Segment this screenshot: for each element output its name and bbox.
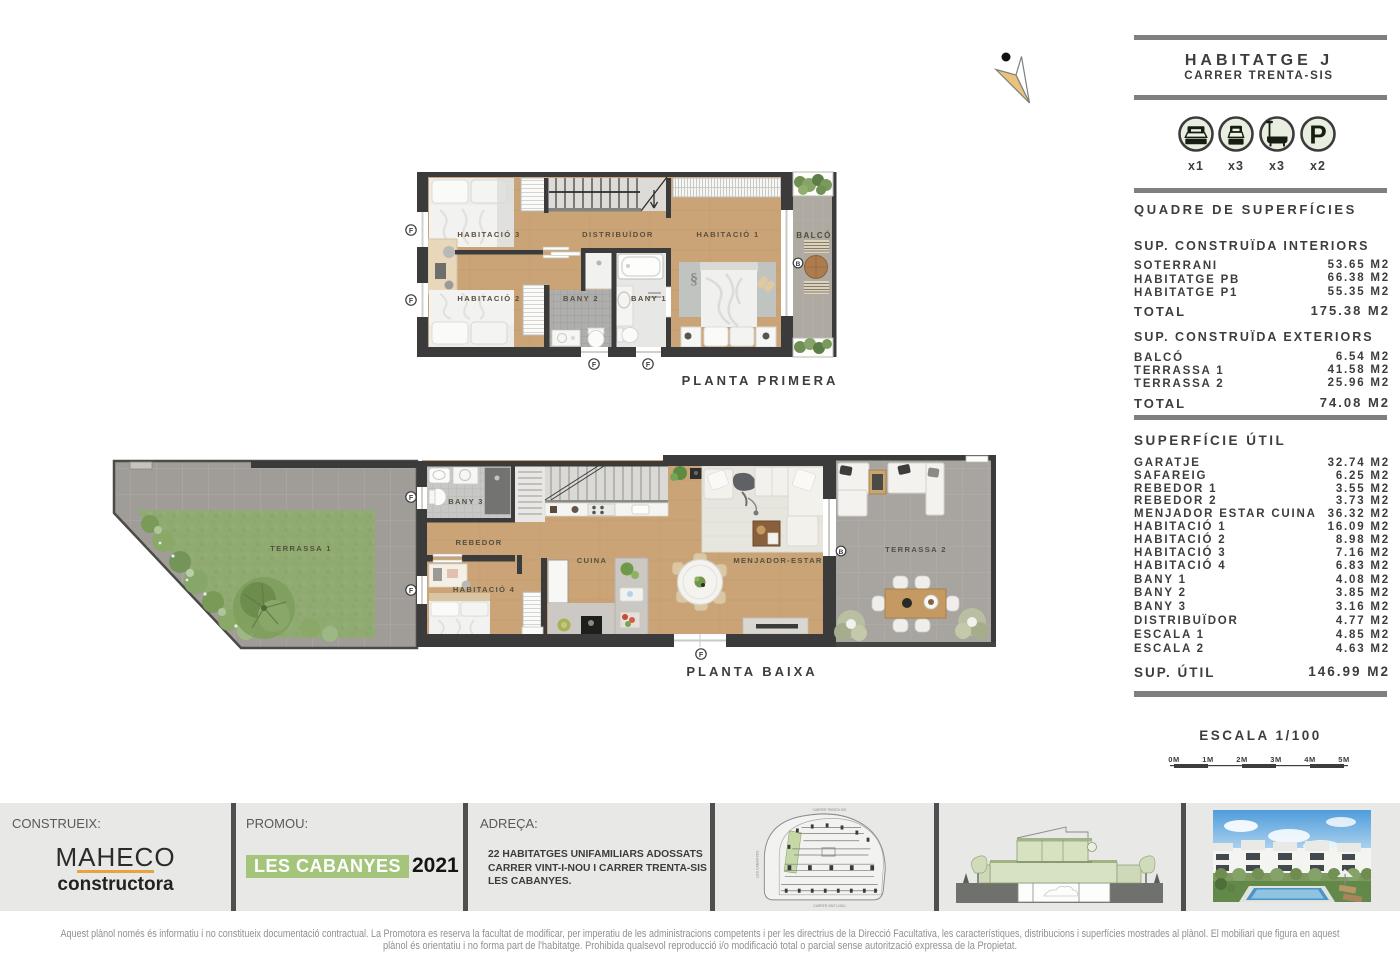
svg-text:F: F [699,652,704,659]
svg-text:TERRASSA 2: TERRASSA 2 [885,545,947,554]
svg-text:x3: x3 [1269,159,1285,173]
svg-text:x3: x3 [1228,159,1244,173]
svg-text:5M: 5M [1338,755,1349,764]
svg-text:F: F [409,228,414,235]
svg-text:CARRER TRENTA-SIS: CARRER TRENTA-SIS [813,808,847,812]
svg-text:LES CABANYES: LES CABANYES [756,850,760,878]
svg-text:F: F [409,495,414,502]
svg-text:0M: 0M [1168,755,1179,764]
svg-text:F: F [409,298,414,305]
svg-text:2M: 2M [1236,755,1247,764]
svg-text:REBEDOR: REBEDOR [455,538,502,547]
svg-text:BANY 3: BANY 3 [448,497,484,506]
svg-text:DISTRIBUÏDOR: DISTRIBUÏDOR [582,230,654,239]
svg-text:F: F [646,362,651,369]
svg-text:B: B [839,549,844,556]
svg-text:4M: 4M [1304,755,1315,764]
svg-text:TERRASSA 1: TERRASSA 1 [270,544,332,553]
svg-text:x2: x2 [1310,159,1326,173]
svg-text:§: § [690,271,698,288]
svg-text:BANY 1: BANY 1 [631,294,667,303]
svg-text:B: B [796,261,801,268]
svg-text:F: F [592,362,597,369]
svg-text:CUINA: CUINA [577,556,608,565]
svg-text:3M: 3M [1270,755,1281,764]
svg-text:F: F [409,588,414,595]
svg-text:BANY 2: BANY 2 [563,294,599,303]
svg-text:BALCÓ: BALCÓ [796,231,831,240]
svg-text:MENJADOR-ESTAR: MENJADOR-ESTAR [733,556,822,565]
svg-text:P: P [1309,120,1326,150]
svg-text:HABITACIÓ 4: HABITACIÓ 4 [453,585,515,594]
svg-text:HABITACIÓ 2: HABITACIÓ 2 [457,294,520,303]
svg-text:HABITACIÓ 3: HABITACIÓ 3 [457,230,520,239]
svg-text:HABITACIÓ 1: HABITACIÓ 1 [696,230,759,239]
svg-text:x1: x1 [1188,159,1204,173]
svg-text:CARRER VINT-I-NOU: CARRER VINT-I-NOU [813,904,846,908]
svg-text:1M: 1M [1202,755,1213,764]
